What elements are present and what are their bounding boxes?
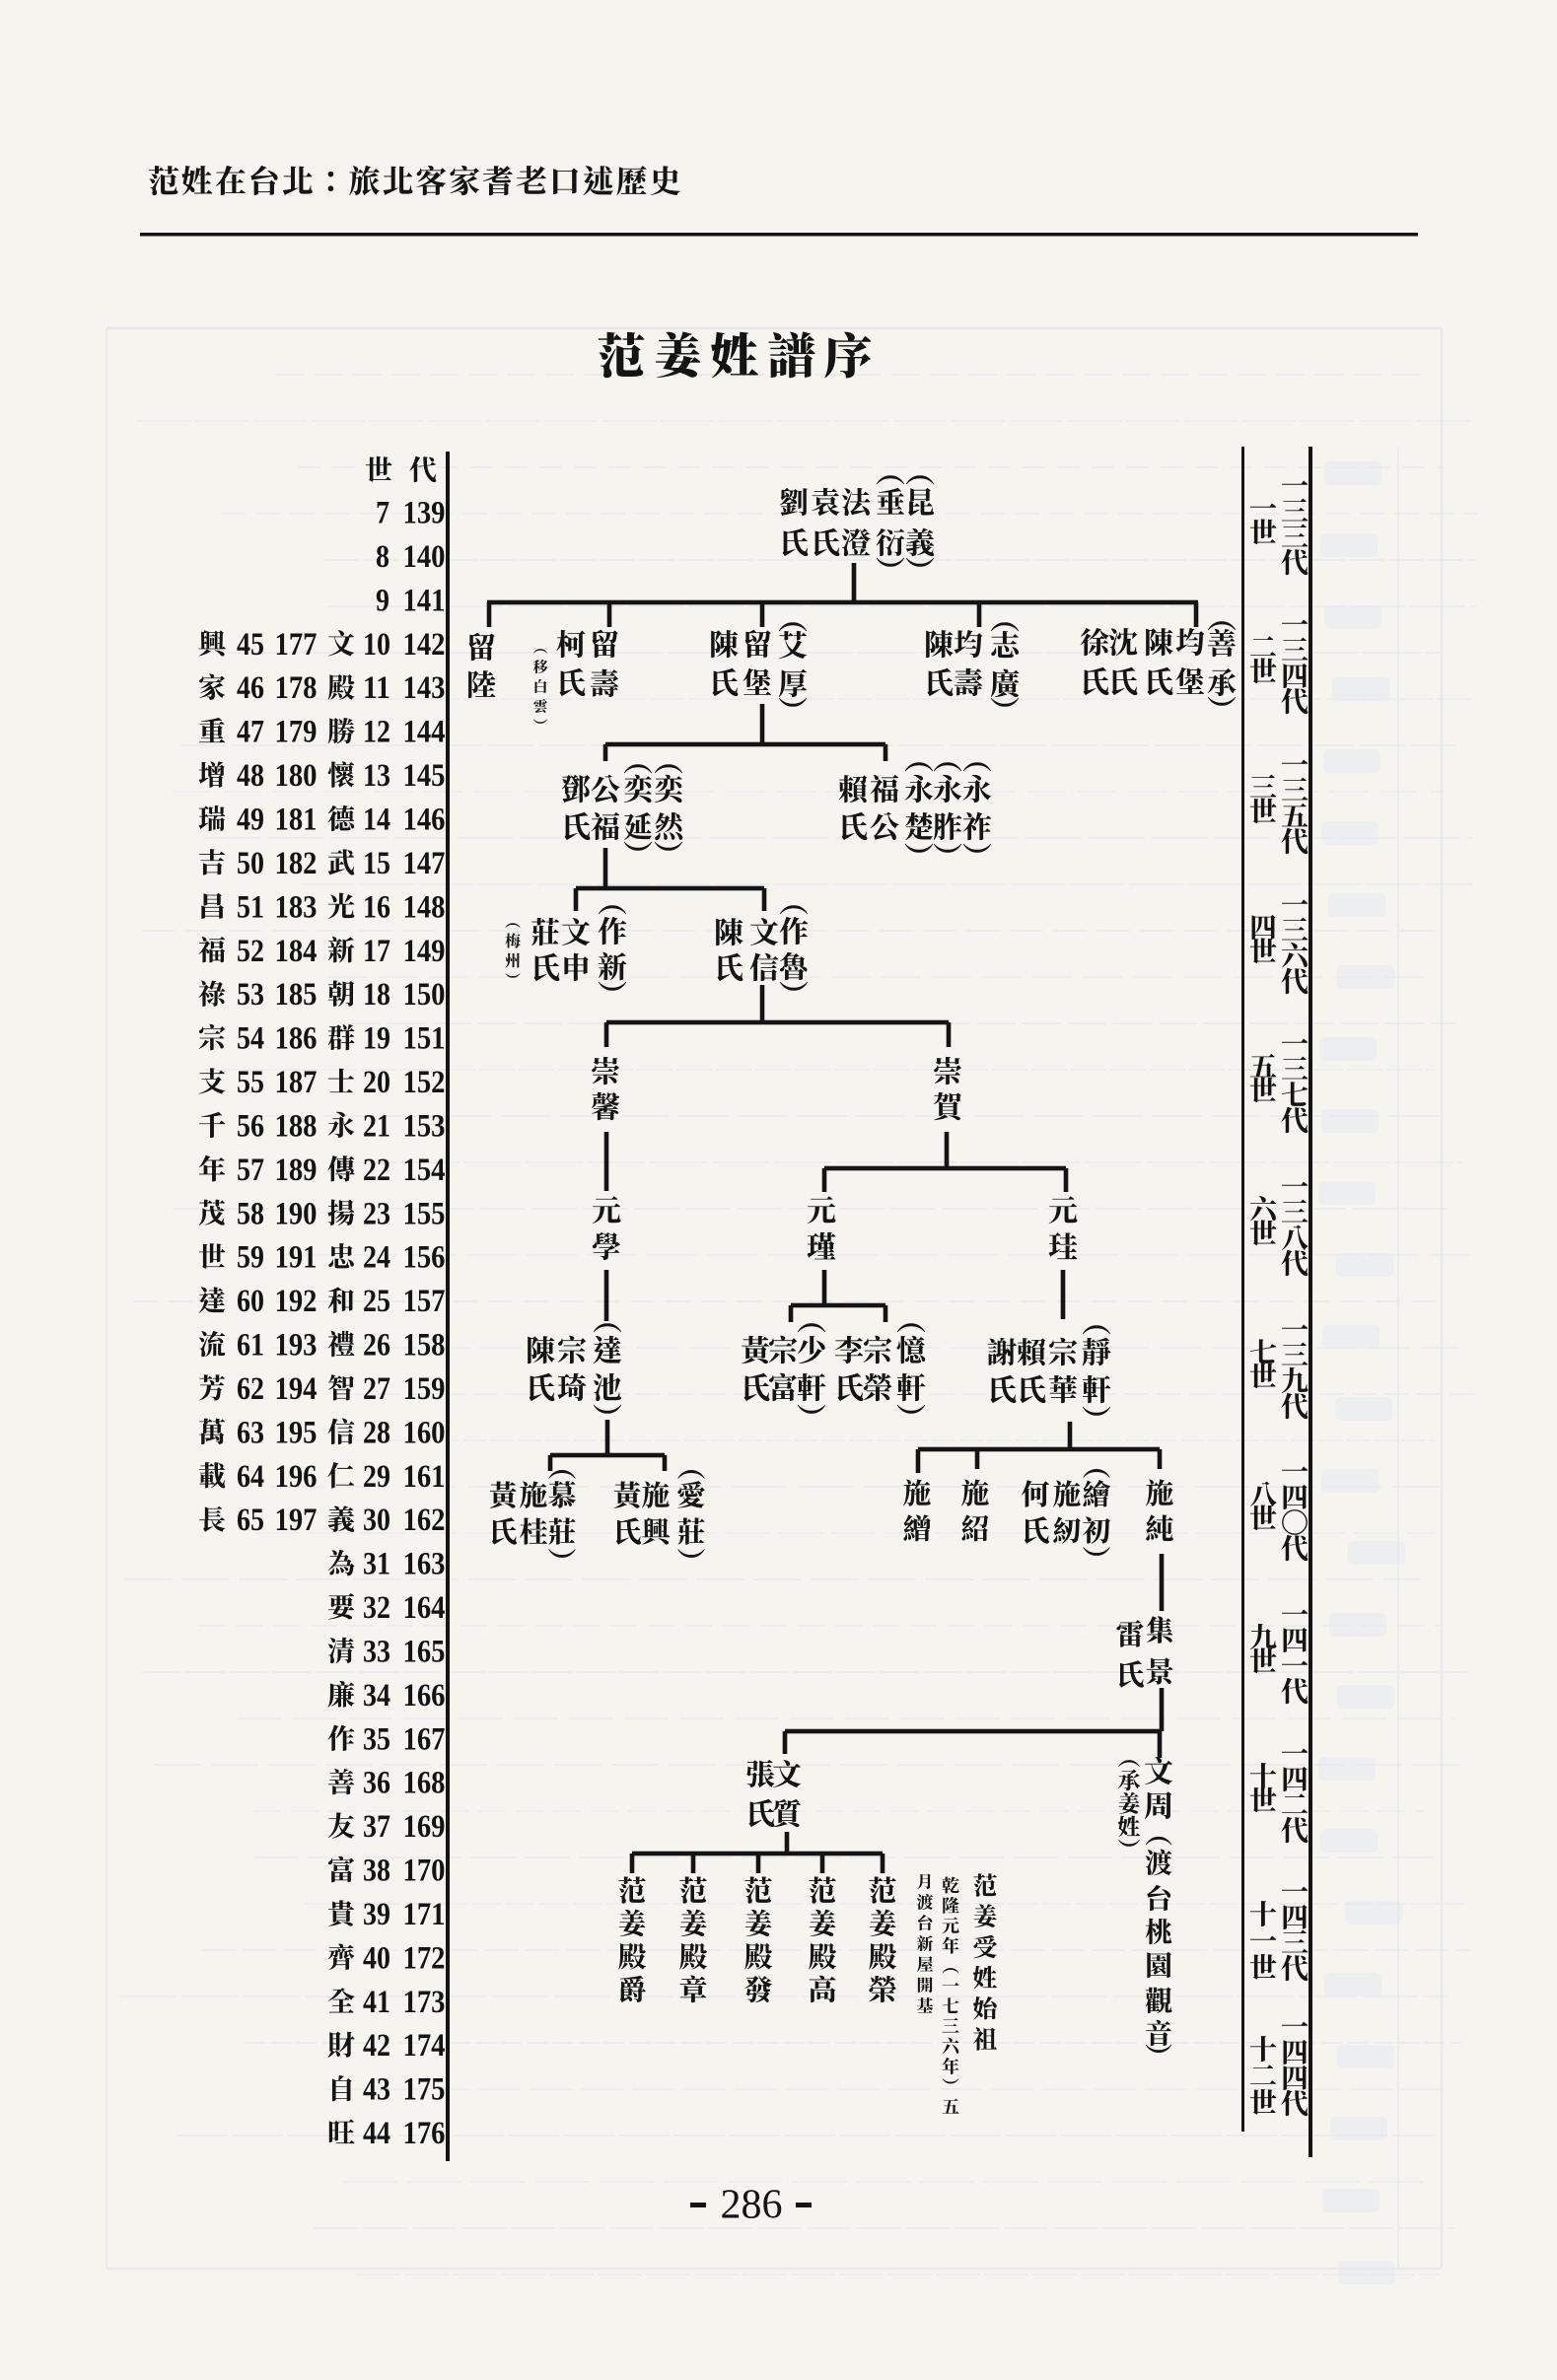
svg-text:48: 48 [237,758,264,794]
svg-text:157: 157 [403,1284,446,1319]
svg-text:187: 187 [275,1065,318,1100]
svg-text:171: 171 [403,1897,446,1932]
svg-text:162: 162 [403,1503,446,1538]
svg-text:65: 65 [237,1503,264,1538]
svg-text:151: 151 [403,1021,446,1057]
svg-text:47: 47 [237,715,264,750]
svg-text:168: 168 [403,1766,446,1801]
svg-text:154: 154 [403,1153,446,1188]
svg-text:144: 144 [403,715,446,750]
svg-text:175: 175 [403,2072,446,2108]
svg-text:35: 35 [363,1721,390,1757]
svg-text:182: 182 [275,846,318,881]
svg-text:34: 34 [363,1678,390,1714]
svg-text:145: 145 [403,758,446,794]
svg-text:164: 164 [403,1590,446,1626]
svg-text:194: 194 [275,1371,318,1407]
svg-text:146: 146 [403,803,446,838]
svg-text:60: 60 [237,1284,264,1319]
svg-text:153: 153 [403,1108,446,1144]
svg-text:29: 29 [363,1459,390,1495]
svg-text:61: 61 [237,1328,264,1364]
svg-text:55: 55 [237,1065,264,1100]
svg-text:165: 165 [403,1635,446,1670]
svg-text:52: 52 [237,934,264,969]
svg-text:180: 180 [275,758,318,794]
svg-text:38: 38 [363,1854,390,1889]
svg-text:63: 63 [237,1415,264,1450]
svg-text:62: 62 [237,1371,264,1407]
svg-text:17: 17 [363,934,390,969]
svg-text:148: 148 [403,889,446,925]
svg-text:53: 53 [237,977,264,1013]
svg-text:160: 160 [403,1415,446,1450]
svg-text:178: 178 [275,670,318,706]
svg-text:15: 15 [363,846,390,881]
svg-text:173: 173 [403,1985,446,2020]
svg-text:16: 16 [363,889,390,925]
svg-text:40: 40 [363,1940,390,1976]
svg-text:155: 155 [403,1196,446,1231]
svg-text:28: 28 [363,1415,390,1450]
svg-text:36: 36 [363,1766,390,1801]
svg-text:172: 172 [403,1940,446,1976]
svg-text:189: 189 [275,1153,318,1188]
svg-text:177: 177 [275,627,318,663]
svg-text:140: 140 [403,539,446,575]
svg-text:31: 31 [363,1547,390,1582]
svg-text:7: 7 [376,496,389,531]
svg-text:174: 174 [403,2028,446,2064]
svg-text:41: 41 [363,1985,390,2020]
svg-text:23: 23 [363,1196,390,1231]
svg-text:50: 50 [237,846,264,881]
svg-text:37: 37 [363,1809,390,1845]
svg-text:14: 14 [363,803,390,838]
svg-text:159: 159 [403,1371,446,1407]
svg-text:141: 141 [403,583,446,618]
svg-text:186: 186 [275,1021,318,1057]
svg-text:192: 192 [275,1284,318,1319]
svg-text:13: 13 [363,758,390,794]
svg-text:54: 54 [237,1021,264,1057]
svg-text:45: 45 [237,627,264,663]
svg-text:181: 181 [275,803,318,838]
svg-text:139: 139 [403,496,446,531]
svg-text:18: 18 [363,977,390,1013]
svg-text:8: 8 [376,539,389,575]
svg-text:150: 150 [403,977,446,1013]
svg-text:42: 42 [363,2028,390,2064]
svg-text:190: 190 [275,1196,318,1231]
svg-text:184: 184 [275,934,318,969]
svg-text:20: 20 [363,1065,390,1100]
svg-text:147: 147 [403,846,446,881]
svg-text:195: 195 [275,1415,318,1450]
svg-text:46: 46 [237,670,264,706]
svg-text:163: 163 [403,1547,446,1582]
svg-text:143: 143 [403,670,446,706]
svg-text:286: 286 [721,2183,783,2228]
svg-text:56: 56 [237,1108,264,1144]
svg-text:44: 44 [363,2116,390,2151]
svg-text:30: 30 [363,1503,390,1538]
svg-text:43: 43 [363,2072,390,2108]
svg-text:179: 179 [275,715,318,750]
svg-text:12: 12 [363,715,390,750]
svg-text:49: 49 [237,803,264,838]
svg-text:26: 26 [363,1328,390,1364]
svg-text:25: 25 [363,1284,390,1319]
svg-text:152: 152 [403,1065,446,1100]
svg-text:58: 58 [237,1196,264,1231]
svg-text:9: 9 [376,583,389,618]
svg-text:27: 27 [363,1371,390,1407]
svg-text:33: 33 [363,1635,390,1670]
svg-text:170: 170 [403,1854,446,1889]
svg-text:57: 57 [237,1153,264,1188]
svg-text:39: 39 [363,1897,390,1932]
svg-text:167: 167 [403,1721,446,1757]
svg-text:197: 197 [275,1503,318,1538]
svg-text:24: 24 [363,1240,390,1276]
svg-text:149: 149 [403,934,446,969]
svg-text:166: 166 [403,1678,446,1714]
svg-text:169: 169 [403,1809,446,1845]
svg-text:51: 51 [237,889,264,925]
svg-text:22: 22 [363,1153,390,1188]
svg-text:176: 176 [403,2116,446,2151]
svg-text:142: 142 [403,627,446,663]
svg-text:64: 64 [237,1459,264,1495]
svg-text:19: 19 [363,1021,390,1057]
svg-text:10: 10 [363,627,390,663]
svg-text:193: 193 [275,1328,318,1364]
svg-text:183: 183 [275,889,318,925]
svg-text:185: 185 [275,977,318,1013]
svg-text:158: 158 [403,1328,446,1364]
svg-text:191: 191 [275,1240,318,1276]
svg-text:156: 156 [403,1240,446,1276]
svg-text:11: 11 [363,670,390,706]
svg-text:161: 161 [403,1459,446,1495]
svg-text:59: 59 [237,1240,264,1276]
svg-text:32: 32 [363,1590,390,1626]
svg-text:196: 196 [275,1459,318,1495]
svg-text:21: 21 [363,1108,390,1144]
svg-text:188: 188 [275,1108,318,1144]
